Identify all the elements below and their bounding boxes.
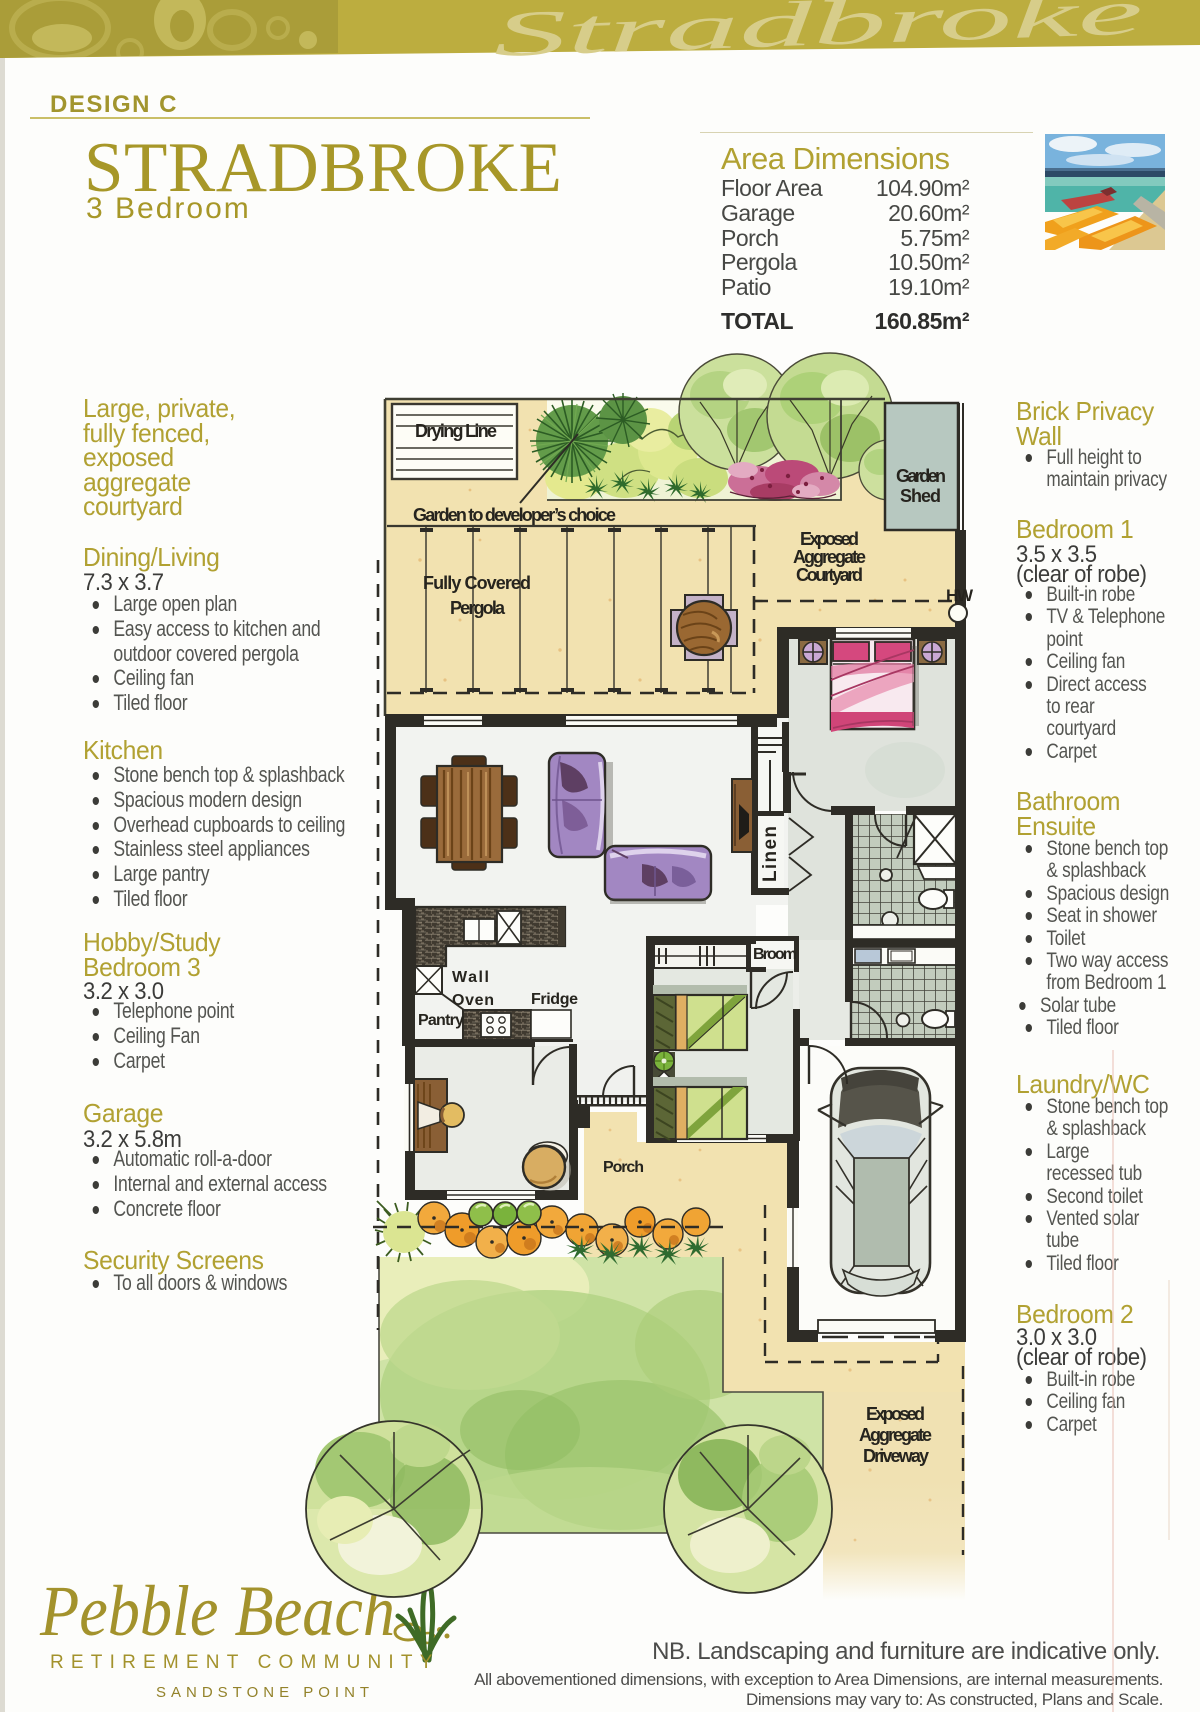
svg-text:Shed: Shed	[900, 486, 941, 506]
svg-text:Drying Line: Drying Line	[415, 421, 497, 441]
svg-text:Garden: Garden	[896, 466, 946, 486]
svg-text:Oven: Oven	[452, 992, 494, 1009]
svg-text:Fridge: Fridge	[531, 991, 578, 1008]
svg-text:Broom: Broom	[753, 946, 797, 963]
svg-text:Garden to developer’s choice: Garden to developer’s choice	[413, 505, 616, 525]
svg-text:Fully Covered: Fully Covered	[423, 573, 531, 593]
svg-text:Exposed: Exposed	[866, 1404, 925, 1424]
svg-text:Pergola: Pergola	[450, 598, 506, 618]
svg-text:Courtyard: Courtyard	[796, 565, 863, 585]
svg-text:Stradbroke: Stradbroke	[492, 0, 1144, 70]
svg-text:Aggregate: Aggregate	[793, 547, 866, 567]
svg-text:Linen: Linen	[760, 826, 781, 882]
svg-text:Pantry: Pantry	[418, 1012, 464, 1029]
svg-text:Exposed: Exposed	[800, 529, 859, 549]
svg-text:Porch: Porch	[603, 1159, 644, 1176]
svg-text:Aggregate: Aggregate	[859, 1425, 932, 1445]
svg-text:HW: HW	[946, 586, 974, 605]
svg-text:Driveway: Driveway	[863, 1446, 929, 1466]
